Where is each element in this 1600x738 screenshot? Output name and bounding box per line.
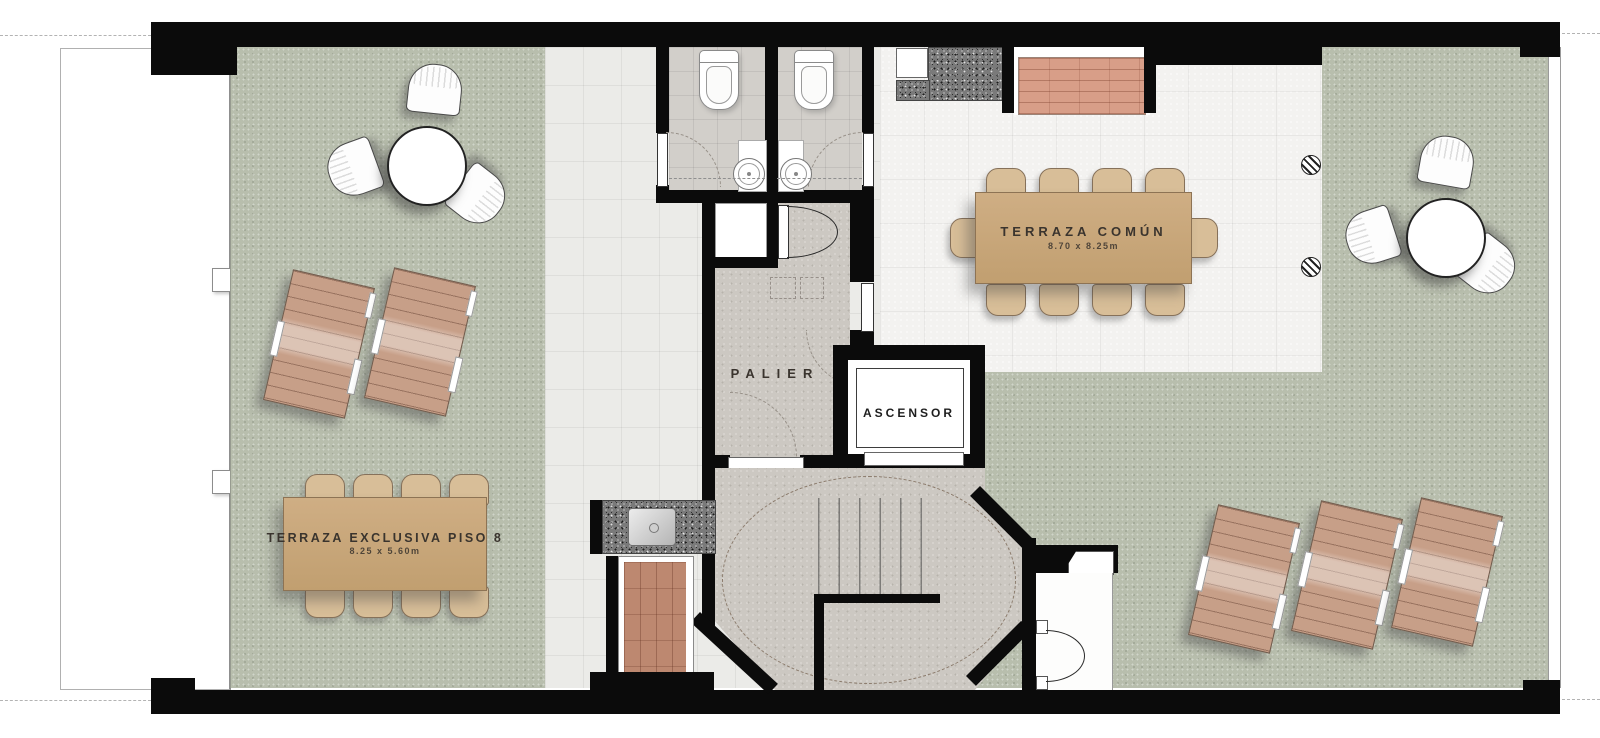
toilet-bowl [706,66,732,104]
outer-wall-top-right-band [1156,47,1322,65]
outer-wall-top-right-step [1520,47,1560,57]
palier-step-wall [715,257,778,268]
terraza-comun-title: TERRAZA COMÚN [1000,224,1166,240]
planter-west-wall [606,556,618,680]
washbasin [733,158,765,190]
outer-wall-bottom [151,690,1560,714]
planter-south-wall [590,672,714,690]
grill-counter-top [928,47,1004,101]
ascensor-label-text: ASCENSOR [863,406,955,420]
terraza-exclusiva-title: TERRAZA EXCLUSIVA PISO 8 [267,531,504,547]
storage-niche [1068,551,1114,575]
palier-label: PALIER [700,366,850,382]
palier-floor-mark [770,277,796,299]
elevator-door-sill [864,452,964,466]
terraza-exclusiva-table: TERRAZA EXCLUSIVA PISO 8 8.25 x 5.60m [283,497,487,591]
storage-west-wall [1022,568,1036,690]
lower-roof-outline [60,48,231,690]
outer-wall-bottom-right-step [1523,680,1560,692]
bathroom-east-wall-upper [862,47,874,133]
round-table [1406,198,1486,278]
terraza-comun-dims: 8.70 x 8.25m [1048,241,1119,252]
bathroom-west-wall-upper [656,47,669,133]
toilet [794,50,834,110]
kitchenette-sink [628,508,676,546]
floor-drain [1301,257,1321,277]
shower-dashed-line [669,178,765,179]
palier-east-door-leaf [861,283,874,332]
shower-dashed-line [777,178,862,179]
dining-chair [1092,284,1132,316]
ascensor-label: ASCENSOR [848,406,970,421]
construction-line-top-right [1562,33,1600,34]
construction-line-bottom-right [1562,699,1600,700]
railing-right [1548,47,1561,688]
planter-bed [624,562,686,676]
palier-west-wall [702,257,715,468]
toilet-tank [700,51,738,63]
outer-wall-top [151,22,1560,47]
outer-wall-bottom-left-step [151,678,195,692]
stair-treads [818,498,940,596]
floor-plan: PALIER ASCENSOR [0,0,1600,738]
stair-mid-wall-horizontal [814,594,940,603]
shaft-west-wall [702,190,715,257]
palier-label-text: PALIER [731,366,820,381]
grill-side-niche [896,48,928,78]
palier-south-wall-left [702,455,730,469]
dining-chair [986,284,1026,316]
round-table [387,126,467,206]
bathroom-2-door-leaf [863,133,874,187]
washbasin [780,158,812,190]
construction-line-bottom-left [0,700,151,701]
toilet [699,50,739,110]
terraza-exclusiva-dims: 8.25 x 5.60m [349,546,420,557]
stair-mid-wall-vertical [814,594,824,690]
palier-floor-mark [800,277,824,299]
terraza-comun-table: TERRAZA COMÚN 8.70 x 8.25m [975,192,1192,284]
grill-nook-west-stub [1002,47,1014,113]
service-shaft [715,203,767,259]
palier-east-wall-upper [850,190,874,282]
grill-counter-strip [896,80,930,101]
dining-chair [1039,284,1079,316]
toilet-bowl [801,66,827,104]
sink-drain [649,523,659,533]
floor-drain [1301,155,1321,175]
grill-parrilla [1018,57,1146,115]
kitchenette-wall [590,500,602,554]
toilet-tank [795,51,833,63]
grill-nook-east-stub [1144,47,1156,113]
outer-wall-top-left-step [151,47,237,75]
dining-chair [1145,284,1185,316]
construction-line-top-left [0,35,151,36]
